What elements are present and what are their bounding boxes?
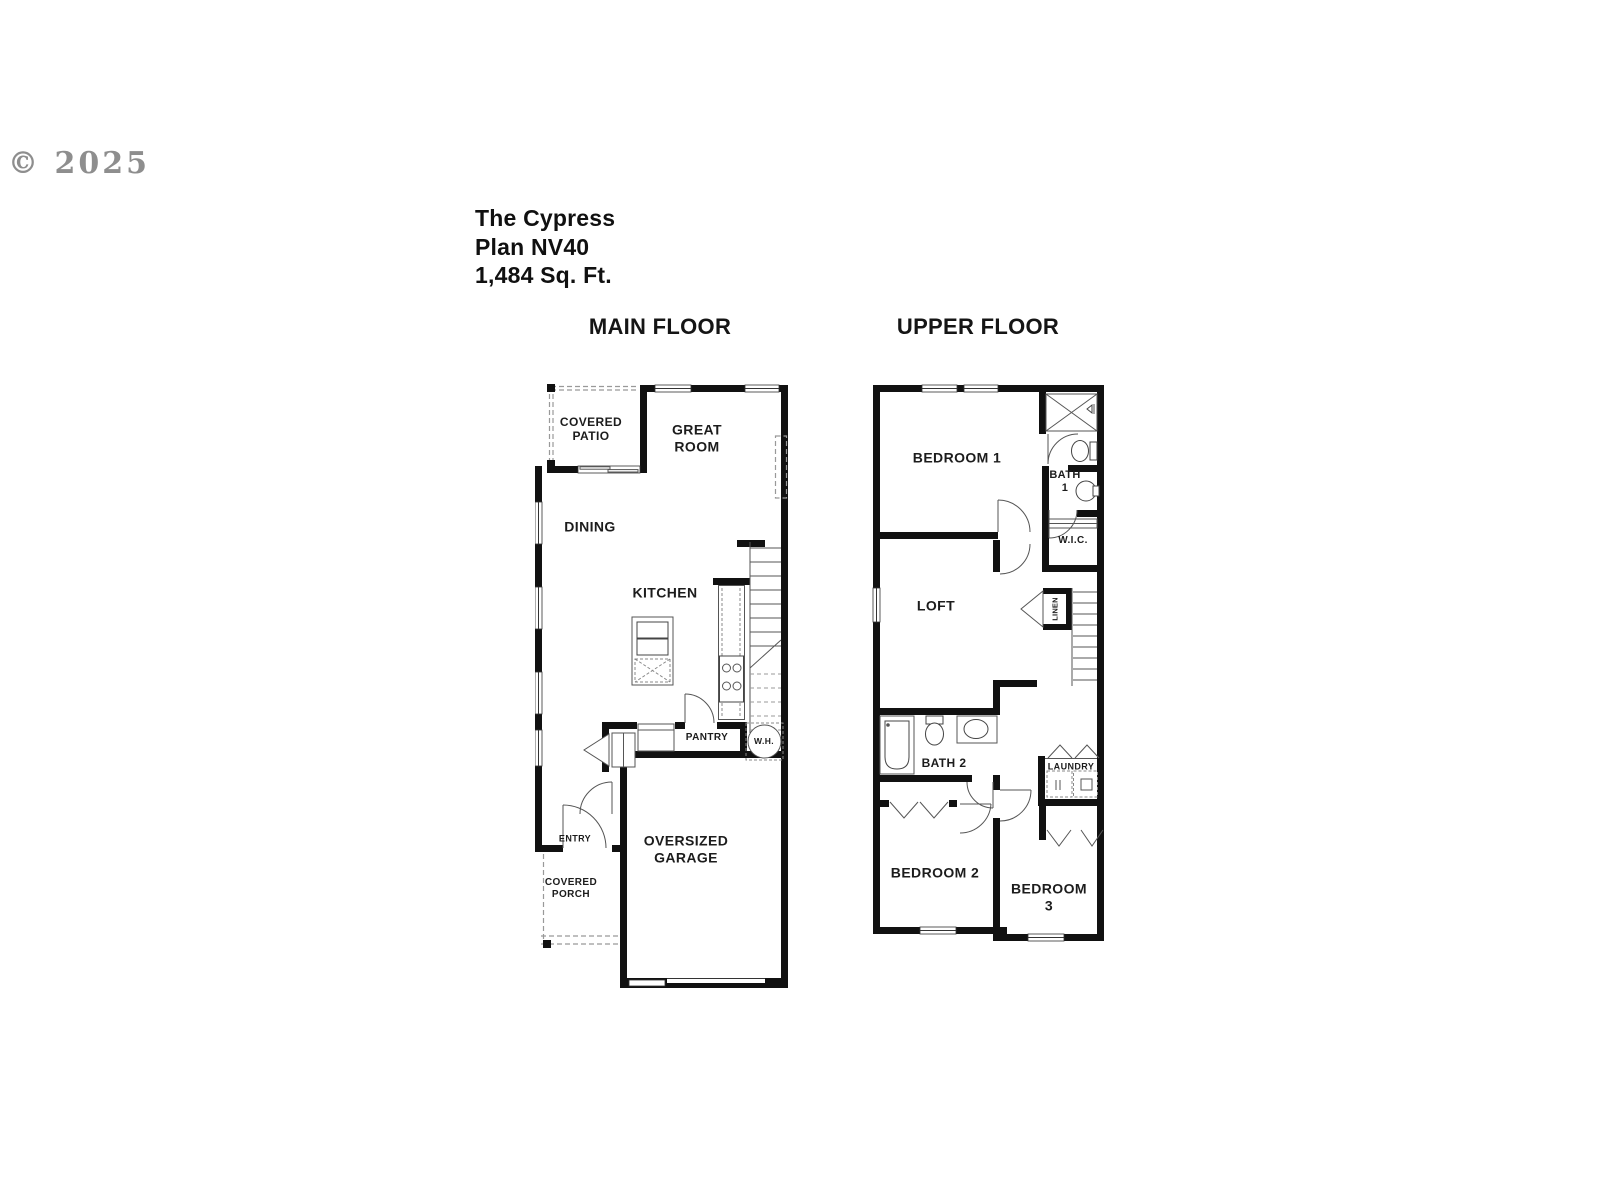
room-label-loft: LOFT [917, 598, 955, 615]
shower-head-icon [1087, 405, 1092, 413]
room-label-linen: LINEN [1052, 597, 1061, 621]
bathtub-icon [880, 716, 914, 774]
room-label-bedroom2: BEDROOM 2 [891, 865, 979, 882]
bath2-toilet-icon [926, 716, 944, 745]
room-label-bedroom3: BEDROOM 3 [1011, 880, 1087, 913]
refrigerator-icon [637, 622, 668, 638]
plan-area: 1,484 Sq. Ft. [475, 261, 615, 290]
main-floor-plan: COVERED PATIO GREAT ROOM DINING KITCHEN … [535, 378, 788, 998]
main-floor-drawing [535, 378, 788, 998]
room-label-kitchen: KITCHEN [632, 585, 697, 602]
bath1-toilet-icon [1072, 441, 1098, 462]
bedroom3-closet-bifold-icon [1047, 830, 1103, 846]
cooktop-icon [720, 656, 744, 702]
room-label-laundry: LAUNDRY [1048, 762, 1094, 773]
hall-cabinet [638, 724, 674, 751]
covered-porch-outline [541, 854, 619, 948]
loft-door-arc [1000, 544, 1030, 574]
room-label-wic: W.I.C. [1058, 535, 1088, 547]
main-floor-heading: MAIN FLOOR [589, 314, 731, 340]
room-label-pantry: PANTRY [686, 732, 728, 744]
bedroom2-closet-bifold-icon [890, 802, 948, 818]
upper-floor-plan: BEDROOM 1 BATH 1 W.I.C. LOFT LINEN BATH … [860, 378, 1104, 948]
room-label-water-heater: W.H. [754, 736, 774, 746]
washer-dryer-icon [1047, 771, 1098, 797]
room-label-great-room: GREAT ROOM [652, 421, 743, 454]
plan-name: The Cypress [475, 204, 615, 233]
pantry-door-arc [685, 694, 714, 723]
plan-title-block: The Cypress Plan NV40 1,484 Sq. Ft. [475, 204, 615, 290]
kitchen-island-icon [632, 617, 673, 685]
stairs [1072, 588, 1097, 686]
linen-door-icon [1021, 591, 1043, 627]
closet-door-icon [584, 734, 609, 766]
room-label-bedroom1: BEDROOM 1 [913, 450, 1001, 467]
room-label-covered-patio: COVERED PATIO [560, 415, 622, 443]
room-label-bath1: BATH 1 [1049, 469, 1080, 495]
bedroom2-door-arc [960, 804, 991, 833]
room-label-covered-porch: COVERED PORCH [545, 877, 597, 901]
bedroom1-door-arc [998, 500, 1030, 532]
room-label-garage: OVERSIZED GARAGE [644, 832, 729, 865]
stairs [750, 542, 781, 733]
room-label-bath2: BATH 2 [922, 756, 967, 770]
windows [873, 385, 1064, 941]
floorplan-sheet: © 2025 The Cypress Plan NV40 1,484 Sq. F… [0, 0, 1600, 1200]
wic-shelf [1049, 519, 1097, 528]
hall-door-arc [580, 782, 612, 814]
room-label-dining: DINING [564, 519, 615, 536]
bedroom3-door-arc [1000, 790, 1031, 821]
laundry-bifold-icon [1045, 745, 1099, 759]
plan-number: Plan NV40 [475, 233, 615, 262]
entry-closet [584, 733, 635, 767]
upper-floor-heading: UPPER FLOOR [897, 314, 1059, 340]
sliding-door [578, 466, 640, 473]
bath2-sink-icon [957, 716, 997, 743]
room-label-entry: ENTRY [559, 834, 591, 845]
shower-icon [1046, 394, 1097, 431]
copyright-watermark: © 2025 [8, 146, 150, 181]
